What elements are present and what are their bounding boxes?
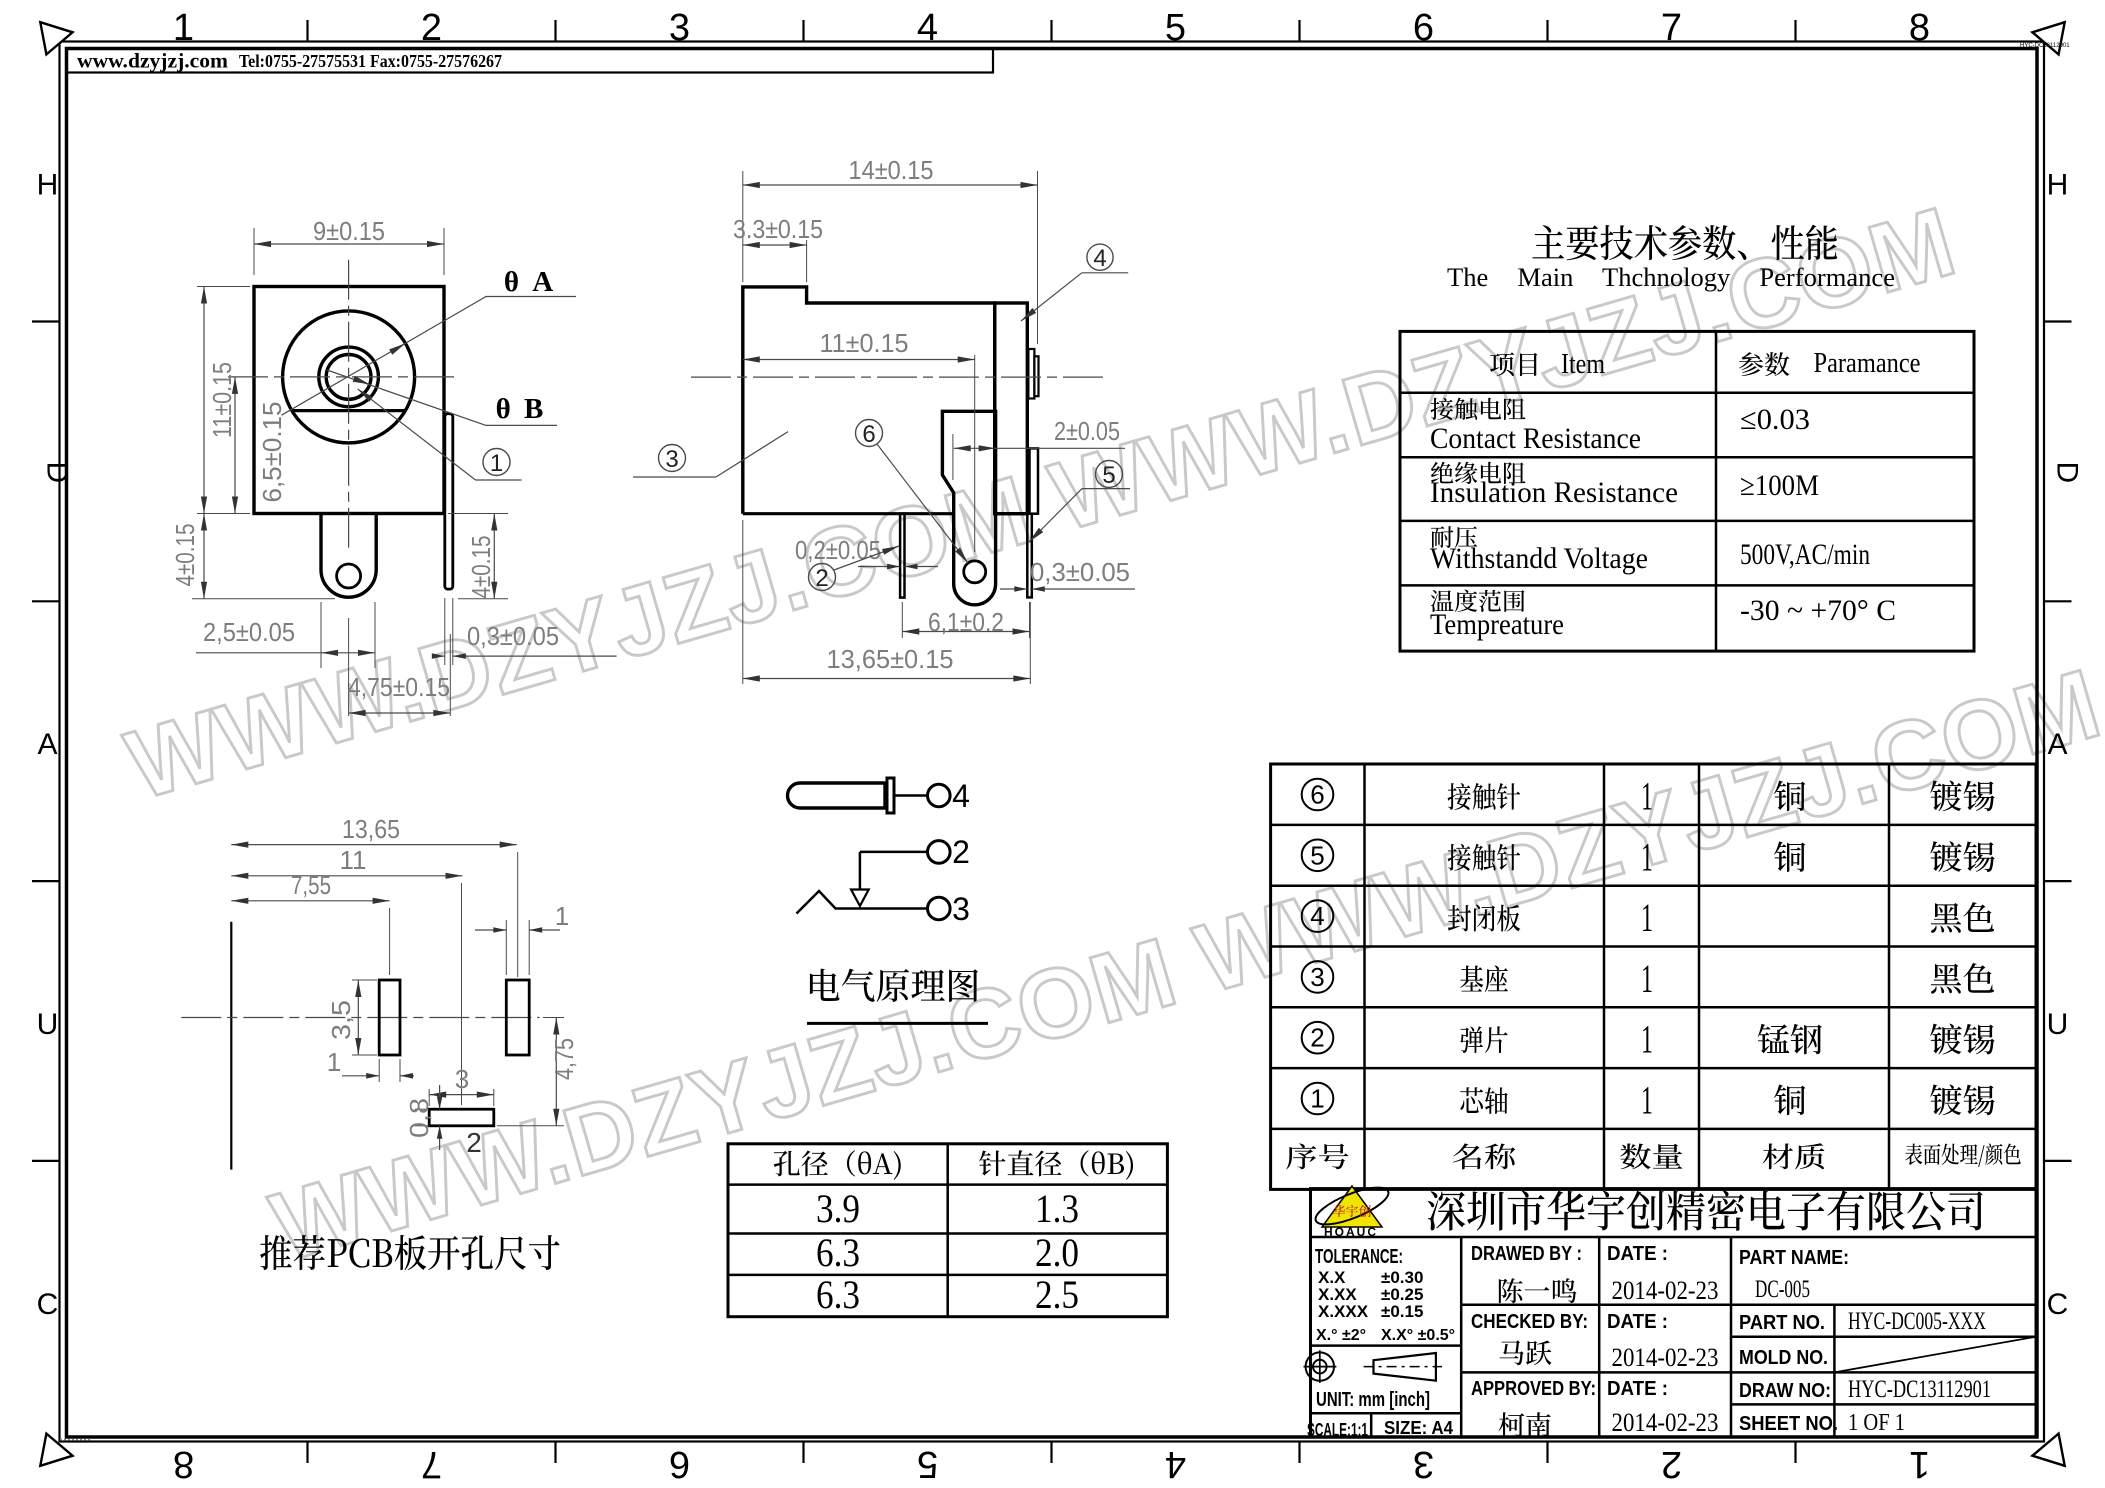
svg-text:7: 7 xyxy=(421,1443,442,1485)
svg-text:4±0.15: 4±0.15 xyxy=(466,536,496,599)
svg-text:4±0.15: 4±0.15 xyxy=(170,524,200,587)
svg-text:14±0.15: 14±0.15 xyxy=(849,155,934,185)
svg-text:DRAWED BY :: DRAWED BY : xyxy=(1471,1243,1582,1265)
svg-text:APPROVED BY:: APPROVED BY: xyxy=(1471,1378,1596,1400)
svg-text:Item: Item xyxy=(1561,349,1605,380)
svg-text:2±0.05: 2±0.05 xyxy=(1054,416,1120,446)
svg-text:1: 1 xyxy=(173,7,194,49)
svg-text:3,5: 3,5 xyxy=(326,1000,356,1040)
svg-text:3.9: 3.9 xyxy=(816,1186,860,1231)
svg-text:3: 3 xyxy=(665,446,678,473)
svg-text:6,5±0.15: 6,5±0.15 xyxy=(257,402,287,503)
svg-text:4: 4 xyxy=(1165,1443,1186,1485)
svg-text:13,65: 13,65 xyxy=(342,814,400,844)
svg-text:4: 4 xyxy=(952,778,970,814)
svg-text:5: 5 xyxy=(1165,7,1186,49)
svg-text:500V,AC/min: 500V,AC/min xyxy=(1740,538,1870,571)
svg-text:DATE :: DATE : xyxy=(1607,1311,1668,1333)
svg-text:PART NAME:: PART NAME: xyxy=(1739,1247,1849,1269)
svg-text:0,3±0.05: 0,3±0.05 xyxy=(1030,557,1130,587)
svg-text:8: 8 xyxy=(1909,7,1930,49)
svg-text:6: 6 xyxy=(1413,7,1434,49)
svg-text:0,2±0.05: 0,2±0.05 xyxy=(795,535,881,565)
svg-text:2: 2 xyxy=(815,565,828,592)
svg-text:2: 2 xyxy=(1310,1023,1324,1053)
svg-text:H: H xyxy=(37,169,59,202)
svg-text:11±0.15: 11±0.15 xyxy=(820,328,909,358)
svg-text:5: 5 xyxy=(1310,840,1324,870)
svg-text:4,75: 4,75 xyxy=(549,1038,579,1080)
svg-text:θ A: θ A xyxy=(504,266,556,298)
svg-text:X.X° ±0.5°: X.X° ±0.5° xyxy=(1381,1327,1455,1344)
svg-text:≥100M: ≥100M xyxy=(1740,469,1819,502)
svg-text:HOAUC: HOAUC xyxy=(1324,1225,1378,1239)
svg-text:9±0.15: 9±0.15 xyxy=(313,216,385,246)
svg-text:3: 3 xyxy=(1413,1443,1434,1485)
svg-text:HYC-DC005-XXX: HYC-DC005-XXX xyxy=(1848,1308,1986,1335)
svg-text:5: 5 xyxy=(1102,462,1115,489)
svg-text:4: 4 xyxy=(1310,901,1324,931)
svg-text:SCALE:1:1: SCALE:1:1 xyxy=(1307,1420,1368,1440)
svg-text:DATE :: DATE : xyxy=(1607,1378,1668,1400)
svg-text:UNIT: mm [inch]: UNIT: mm [inch] xyxy=(1316,1389,1430,1411)
svg-text:θ B: θ B xyxy=(496,393,547,425)
svg-text:3: 3 xyxy=(952,891,970,927)
svg-text:C: C xyxy=(2047,1288,2069,1321)
svg-text:13,65±0.15: 13,65±0.15 xyxy=(827,644,954,674)
svg-text:Paramance: Paramance xyxy=(1814,348,1921,379)
svg-text:SIZE: A4: SIZE: A4 xyxy=(1384,1418,1453,1438)
svg-text:D: D xyxy=(2051,462,2084,484)
svg-text:C: C xyxy=(37,1288,59,1321)
svg-text:A: A xyxy=(2047,728,2067,761)
svg-text:4: 4 xyxy=(917,7,938,49)
svg-text:U: U xyxy=(37,1008,59,1041)
svg-text:Insulation Resistance: Insulation Resistance xyxy=(1430,476,1678,509)
svg-text:X.° ±2°: X.° ±2° xyxy=(1316,1327,1366,1344)
svg-text:-30 ~ +70° C: -30 ~ +70° C xyxy=(1740,594,1896,627)
svg-text:1: 1 xyxy=(1641,1078,1653,1123)
svg-text:Tempreature: Tempreature xyxy=(1430,608,1564,641)
svg-text:CHECKED BY:: CHECKED BY: xyxy=(1471,1311,1588,1333)
svg-text:The Main Thchnology Perform: The Main Thchnology Performance xyxy=(1447,263,1895,292)
svg-text:2014-02-23: 2014-02-23 xyxy=(1612,1276,1719,1305)
svg-text:1: 1 xyxy=(1641,1017,1653,1062)
svg-text:TOLERANCE:: TOLERANCE: xyxy=(1315,1246,1403,1268)
svg-text:www.dzyjzj.com: www.dzyjzj.com xyxy=(77,49,229,73)
svg-text:11±0.15: 11±0.15 xyxy=(207,362,237,438)
svg-text:HYC-DC13112901: HYC-DC13112901 xyxy=(1848,1376,1991,1403)
svg-text:1: 1 xyxy=(1310,1084,1324,1114)
svg-text:2: 2 xyxy=(952,834,970,870)
svg-text:1: 1 xyxy=(490,450,503,477)
svg-text:1: 1 xyxy=(1909,1443,1930,1485)
svg-text:6: 6 xyxy=(1310,780,1324,810)
svg-text:2,5±0.05: 2,5±0.05 xyxy=(203,617,295,647)
svg-text:0,3±0.05: 0,3±0.05 xyxy=(467,621,559,651)
svg-text:1: 1 xyxy=(555,901,569,931)
svg-text:H: H xyxy=(2047,169,2069,202)
svg-text:X.XXX: X.XXX xyxy=(1318,1302,1369,1321)
svg-text:6.3: 6.3 xyxy=(816,1230,860,1275)
svg-text:7,55: 7,55 xyxy=(291,870,331,900)
svg-text:MOLD NO.: MOLD NO. xyxy=(1739,1347,1828,1369)
svg-text:1: 1 xyxy=(1641,895,1653,940)
svg-text:6.3: 6.3 xyxy=(816,1272,860,1317)
svg-text:1 OF 1: 1 OF 1 xyxy=(1848,1410,1905,1436)
svg-text:HYC-DC13112901: HYC-DC13112901 xyxy=(2020,43,2070,49)
svg-text:11: 11 xyxy=(340,845,367,875)
svg-text:2: 2 xyxy=(1661,1443,1682,1485)
svg-text:3: 3 xyxy=(669,7,690,49)
svg-text:Contact Resistance: Contact Resistance xyxy=(1430,422,1641,455)
svg-text:0,8: 0,8 xyxy=(404,1098,434,1138)
svg-text:3: 3 xyxy=(455,1064,469,1094)
svg-text:Withstandd Voltage: Withstandd Voltage xyxy=(1430,542,1648,575)
svg-text:4,75±0.15: 4,75±0.15 xyxy=(348,672,450,702)
svg-text:1: 1 xyxy=(1641,834,1653,879)
svg-text:D: D xyxy=(41,462,74,484)
svg-text:1: 1 xyxy=(327,1047,341,1077)
svg-text:2014-02-23: 2014-02-23 xyxy=(1612,1343,1719,1372)
svg-text:≤0.03: ≤0.03 xyxy=(1740,403,1810,436)
svg-text:U: U xyxy=(2047,1008,2069,1041)
svg-text:1: 1 xyxy=(1641,956,1653,1001)
svg-text:±0.15: ±0.15 xyxy=(1381,1302,1423,1321)
svg-text:1.3: 1.3 xyxy=(1035,1186,1079,1231)
svg-text:2: 2 xyxy=(421,7,442,49)
svg-text:2.5: 2.5 xyxy=(1035,1272,1079,1317)
svg-text:6: 6 xyxy=(669,1443,690,1485)
svg-text:4: 4 xyxy=(1093,245,1106,272)
svg-text:2.0: 2.0 xyxy=(1035,1230,1079,1275)
svg-text:A: A xyxy=(37,728,57,761)
svg-text:DC-005: DC-005 xyxy=(1755,1276,1810,1303)
svg-text:6,1±0.2: 6,1±0.2 xyxy=(928,607,1004,637)
svg-text:7: 7 xyxy=(1661,7,1682,49)
svg-text:3.3±0.15: 3.3±0.15 xyxy=(733,214,823,244)
svg-text:6: 6 xyxy=(862,421,875,448)
svg-text:8: 8 xyxy=(173,1443,194,1485)
svg-text:2014-02-23: 2014-02-23 xyxy=(1612,1408,1719,1437)
svg-text:1: 1 xyxy=(1641,774,1653,819)
svg-text:2: 2 xyxy=(466,1127,482,1158)
svg-text:SHEET NO.: SHEET NO. xyxy=(1739,1413,1838,1435)
svg-text:5: 5 xyxy=(917,1443,938,1485)
svg-text:DATE :: DATE : xyxy=(1607,1243,1668,1265)
svg-text:PART NO.: PART NO. xyxy=(1739,1312,1825,1334)
svg-text:3: 3 xyxy=(1310,962,1324,992)
svg-text:Tel:0755-27575531 Fax:0755-27: Tel:0755-27575531 Fax:0755-27576267 xyxy=(239,51,502,71)
svg-text:DRAW NO:: DRAW NO: xyxy=(1739,1380,1831,1402)
